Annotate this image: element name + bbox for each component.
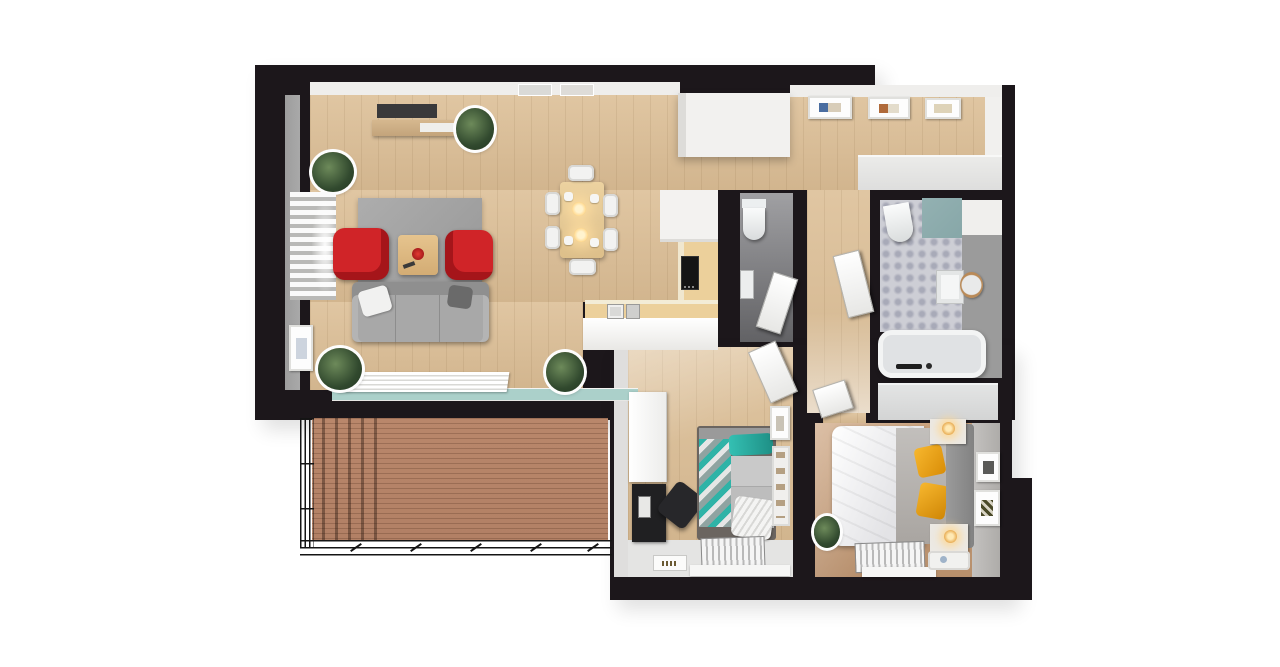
kitchen-appliance-kettle	[607, 304, 624, 319]
kitchen-counter-front	[583, 318, 718, 350]
plant-by-console	[456, 108, 494, 150]
kids-window-sill	[690, 565, 790, 576]
master-wall-picture-2	[974, 490, 1000, 526]
dining-plate-2	[590, 194, 599, 203]
entry-picture-3	[925, 98, 961, 119]
wall-block-notch	[1012, 478, 1032, 600]
dining-plate-4	[590, 238, 599, 247]
cooktop	[681, 256, 699, 290]
master-window-sill	[862, 567, 936, 577]
window-curtain-stack	[337, 372, 510, 392]
dining-chair-bottom	[569, 259, 596, 275]
kids-floor-mat-print	[662, 561, 678, 566]
dining-pendant-light-1	[572, 202, 586, 216]
plant-bottom-left	[318, 348, 362, 390]
coffee-table-red-bowl	[412, 248, 424, 260]
wc-toilet-tank	[742, 199, 766, 208]
bathroom-round-mirror	[960, 272, 983, 298]
dining-pendant-light-2	[574, 228, 588, 242]
sofa-pillow-dark	[447, 284, 474, 309]
master-plant	[814, 516, 840, 548]
cooktop-burner-dots	[684, 286, 696, 288]
bathtub-faucet	[896, 364, 922, 369]
floor-plan	[0, 0, 1280, 667]
wc-toilet	[743, 208, 765, 240]
master-wardrobe-top	[878, 383, 998, 420]
master-wall-picture-1	[976, 452, 1000, 482]
ceiling-spotlight-1	[518, 84, 552, 96]
master-tray-cup	[940, 556, 947, 563]
balcony-railing-left	[300, 418, 314, 548]
balcony-railing-shadow	[322, 418, 380, 540]
kitchen-counter-horizontal	[585, 300, 718, 318]
master-lamp-top	[942, 422, 955, 435]
master-serving-tray	[928, 551, 970, 570]
kids-room-left-wall-face	[614, 347, 628, 577]
dining-chair-left-1	[545, 192, 560, 215]
dining-chair-right-1	[603, 194, 618, 217]
entry-picture-2	[868, 97, 910, 119]
armchair-red-right	[445, 230, 493, 280]
living-top-wall-face	[310, 82, 680, 95]
kids-wardrobe	[629, 392, 667, 482]
dining-chair-top	[568, 165, 594, 181]
dining-plate-3	[564, 236, 573, 245]
master-lamp-bottom	[944, 530, 957, 543]
kids-bed-teal-pillow	[728, 433, 773, 456]
balcony-railing-bottom	[300, 540, 612, 557]
entry-cabinet	[858, 155, 1002, 190]
plant-bottom-center	[546, 352, 584, 392]
armchair-red-left	[333, 228, 389, 280]
kids-floor-mat	[653, 555, 687, 571]
kitchen-tall-unit	[678, 93, 790, 157]
wall-picture-left	[289, 325, 313, 371]
bathroom-teal-panel	[922, 198, 962, 238]
dining-chair-left-2	[545, 226, 560, 249]
master-pillow-yellow-1	[913, 443, 947, 478]
entry-picture-1	[808, 96, 852, 119]
wc-washbasin	[740, 270, 754, 299]
bathtub-faucet-knob	[926, 363, 932, 369]
ceiling-spotlight-2	[560, 84, 594, 96]
dining-plate-1	[564, 192, 573, 201]
kids-shelf-items	[776, 452, 785, 518]
kids-bed-chevron-blanket	[699, 439, 731, 527]
kids-wall-picture	[770, 406, 790, 440]
kids-bed-white-throw	[730, 495, 775, 540]
bathtub	[878, 330, 986, 378]
tv-screen	[377, 104, 437, 118]
kitchen-appliance-coffee	[626, 304, 640, 319]
kitchen-corner-cabinet	[660, 190, 718, 242]
plant-top-left	[312, 152, 354, 192]
master-pillow-yellow-2	[915, 482, 949, 521]
kids-desk-laptop	[638, 496, 651, 518]
entry-right-wall-face	[985, 97, 1002, 155]
dining-chair-right-2	[603, 228, 618, 251]
